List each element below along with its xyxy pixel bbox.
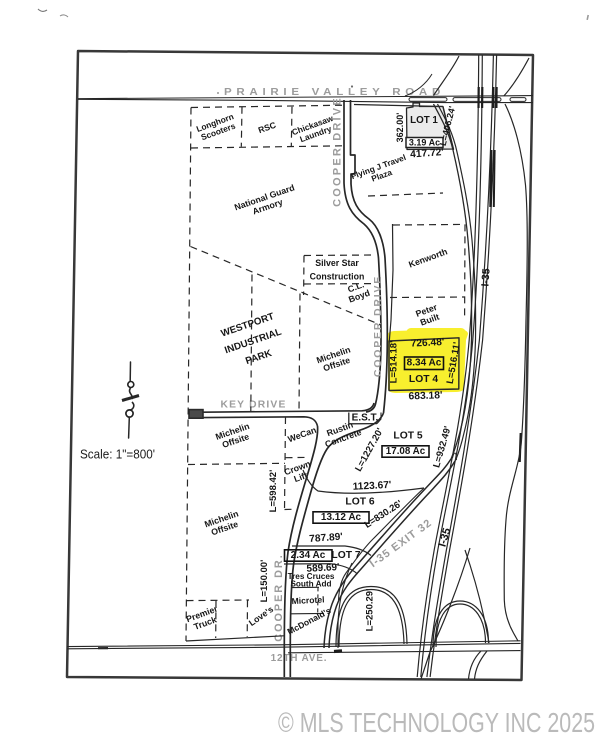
- svg-text:COOPER DRIVE: COOPER DRIVE: [372, 275, 384, 377]
- svg-text:L=514.18': L=514.18': [389, 341, 400, 384]
- svg-text:3.19 Ac: 3.19 Ac: [409, 138, 440, 148]
- svg-text:13.12 Ac: 13.12 Ac: [321, 512, 362, 523]
- svg-text:1123.67': 1123.67': [352, 480, 391, 493]
- svg-text:LOT 7: LOT 7: [331, 550, 360, 561]
- svg-text:Microtel: Microtel: [291, 594, 324, 606]
- svg-text:8.34 Ac: 8.34 Ac: [407, 358, 442, 369]
- svg-text:Scale: 1"=800': Scale: 1"=800': [80, 446, 155, 461]
- svg-text:17.08 Ac: 17.08 Ac: [386, 446, 426, 457]
- svg-text:COOPER DR.: COOPER DR.: [273, 553, 285, 641]
- svg-text:LOT 1: LOT 1: [410, 115, 438, 126]
- svg-text:E.S.T.: E.S.T.: [352, 413, 379, 424]
- svg-text:KEY DRIVE: KEY DRIVE: [220, 400, 286, 411]
- svg-text:COOPER DRIVE: COOPER DRIVE: [332, 96, 344, 207]
- svg-text:LOT 5: LOT 5: [393, 431, 422, 442]
- svg-text:2.34 Ac: 2.34 Ac: [291, 550, 326, 561]
- svg-text:12TH AVE.: 12TH AVE.: [271, 653, 328, 664]
- svg-text:L=150.00': L=150.00': [259, 560, 270, 603]
- svg-text:LOT 6: LOT 6: [345, 497, 374, 508]
- svg-text:Silver Star: Silver Star: [315, 258, 359, 268]
- svg-text:© MLS TECHNOLOGY INC 2025: © MLS TECHNOLOGY INC 2025: [278, 707, 595, 738]
- svg-text:L=598.42': L=598.42': [268, 470, 279, 513]
- svg-text:LOT 4: LOT 4: [409, 374, 438, 385]
- svg-text:362.00': 362.00': [395, 113, 405, 143]
- svg-text:I-35: I-35: [479, 268, 492, 287]
- svg-text:Construction: Construction: [310, 272, 365, 282]
- svg-text:787.89': 787.89': [309, 532, 343, 545]
- svg-text:726.48': 726.48': [410, 337, 444, 350]
- svg-text:L=250.29': L=250.29': [364, 589, 375, 632]
- svg-text:Tres CrucesSouth Add: Tres CrucesSouth Add: [288, 572, 335, 589]
- svg-text:417.72': 417.72': [410, 147, 444, 160]
- svg-text:683.18': 683.18': [408, 390, 442, 402]
